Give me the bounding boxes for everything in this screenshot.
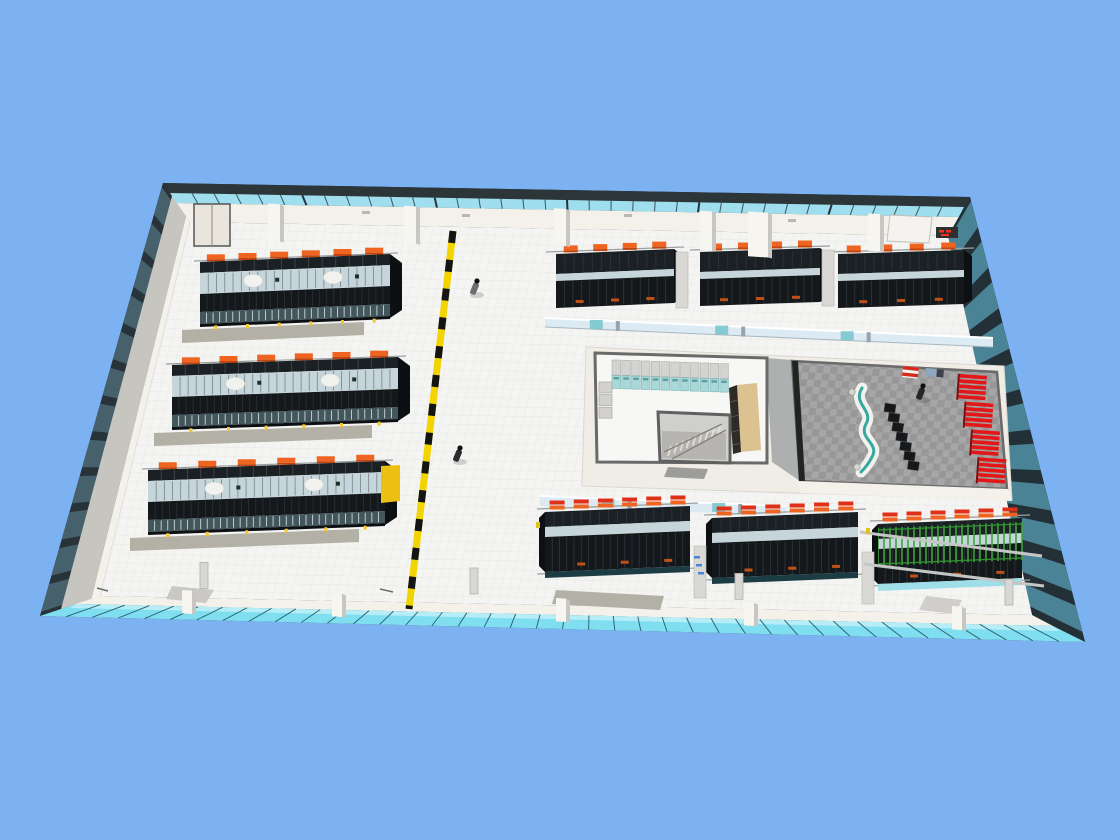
floor-dot <box>341 320 344 324</box>
cabinet-back <box>700 363 709 378</box>
floor-dot <box>324 527 327 531</box>
cable-tray-shadow <box>239 258 257 260</box>
cable-tray <box>941 243 955 248</box>
front-label <box>576 300 584 303</box>
partition-stub <box>200 563 208 589</box>
floor-dot <box>246 324 249 328</box>
cable-tray <box>646 497 661 501</box>
cable-tray <box>838 507 853 511</box>
cable-tray <box>302 250 320 255</box>
cabinet-back <box>681 362 690 377</box>
cabinet-label <box>643 378 649 380</box>
wall-fixture <box>462 214 470 217</box>
door-mat <box>664 467 708 479</box>
cabinet-label <box>712 380 718 382</box>
rack-row-left-2[interactable] <box>154 351 410 446</box>
cable-tray <box>979 509 994 513</box>
cabinet-label <box>672 379 678 381</box>
floor-dot <box>245 530 248 534</box>
cable-tray <box>270 252 288 257</box>
cable-tray-shadow <box>182 362 200 364</box>
row-end-cap <box>539 512 545 572</box>
cable-tray <box>220 356 238 361</box>
black-chair[interactable] <box>907 461 919 471</box>
rack-row-top-1[interactable] <box>546 242 684 308</box>
front-label <box>897 299 905 302</box>
pillar-shadow <box>566 209 570 247</box>
floor-dot <box>285 529 288 533</box>
cable-tray <box>838 502 853 506</box>
led-digit <box>941 234 949 236</box>
cable-tray <box>883 518 898 522</box>
gap-column <box>676 252 688 308</box>
pillar-shadow <box>712 211 716 251</box>
front-label <box>996 571 1004 574</box>
cable-tray <box>717 507 732 511</box>
cable-tray <box>1003 508 1018 512</box>
cabinet-back <box>661 362 670 377</box>
cabinet-back <box>641 361 650 376</box>
front-label <box>859 300 867 303</box>
cable-tray-shadow <box>365 253 383 255</box>
cable-tray <box>317 456 335 461</box>
cabinet-back <box>612 360 621 375</box>
yellow-marker <box>536 522 540 528</box>
cable-tray <box>765 505 780 509</box>
cable-tray-shadow <box>847 251 861 253</box>
ceiling-fan <box>244 274 263 287</box>
wall-fixture <box>362 211 370 214</box>
cable-tray <box>598 504 613 508</box>
sensor-box <box>352 377 356 381</box>
cable-tray-shadow <box>277 463 295 465</box>
ceiling-fan <box>304 478 323 491</box>
corridor-teal-accent <box>590 320 603 329</box>
corridor-teal-accent <box>841 331 854 340</box>
cable-tray <box>955 515 970 519</box>
cable-tray-shadow <box>564 250 578 252</box>
cable-tray <box>239 253 257 258</box>
cabinet-label <box>663 379 669 381</box>
black-chair[interactable] <box>892 422 904 432</box>
pillar <box>182 590 192 614</box>
pillar <box>952 606 962 630</box>
cable-tray <box>333 352 351 357</box>
cable-tray <box>741 506 756 510</box>
sensor-box <box>355 274 359 278</box>
cable-tray-shadow <box>207 259 225 261</box>
pillar-shadow <box>880 214 884 252</box>
front-label <box>788 567 796 570</box>
stairwell <box>658 412 730 463</box>
cable-tray <box>334 249 352 254</box>
pillar <box>700 211 712 251</box>
cable-tray <box>622 503 637 507</box>
cabinet-back <box>671 362 680 377</box>
pillar <box>268 204 280 242</box>
cable-tray-shadow <box>317 461 335 463</box>
front-label <box>621 561 629 564</box>
floor-dot <box>309 321 312 325</box>
rack-front-face <box>700 275 820 306</box>
cable-tray <box>670 496 685 500</box>
sensor-box <box>257 381 261 385</box>
pillar <box>868 213 880 251</box>
stool <box>849 389 855 395</box>
cable-tray <box>847 246 861 251</box>
ceiling-fan <box>205 482 224 495</box>
cable-tray <box>741 511 756 515</box>
row-end-cap <box>706 518 712 578</box>
front-label <box>577 563 585 566</box>
cable-tray-shadow <box>623 248 637 250</box>
cable-tray <box>550 506 565 510</box>
cable-tray <box>931 516 946 520</box>
pillar-shadow <box>416 207 420 245</box>
pillar-shadow <box>192 591 196 615</box>
cabinet-label <box>623 377 629 379</box>
pillar-shadow <box>342 594 346 618</box>
person-head <box>474 278 479 283</box>
row-end-cap <box>390 254 402 318</box>
cable-tray <box>598 499 613 503</box>
cabinet-label <box>682 379 688 381</box>
cable-tray <box>670 501 685 505</box>
corridor-column <box>741 327 745 337</box>
rack-row-top-3[interactable] <box>828 243 974 309</box>
cabinet-back <box>651 361 660 376</box>
cable-tray-shadow <box>302 255 320 257</box>
cable-tray-shadow <box>356 460 374 462</box>
rack-front-face <box>838 277 964 308</box>
cable-tray-shadow <box>238 464 256 466</box>
cable-tray-shadow <box>333 357 351 359</box>
front-label <box>792 296 800 299</box>
cable-tray <box>814 503 829 507</box>
cabinet-label <box>692 380 698 382</box>
cable-tray <box>370 351 388 356</box>
cable-tray <box>979 514 994 518</box>
partition-stub <box>1005 579 1013 605</box>
cable-tray <box>652 242 666 247</box>
wall-fixture <box>788 219 796 222</box>
pillar <box>332 593 342 617</box>
floor-dot <box>214 325 217 329</box>
front-label <box>646 297 654 300</box>
cable-tray <box>790 509 805 513</box>
cable-tray <box>356 455 374 460</box>
floor-dot <box>265 426 268 430</box>
cable-tray <box>257 355 275 360</box>
gray-storage-boxes <box>599 382 612 418</box>
led-digit <box>946 230 951 233</box>
pillar-shadow <box>280 204 284 242</box>
cabinet-label <box>614 377 620 379</box>
partition-stub <box>470 568 478 594</box>
black-chair[interactable] <box>900 441 912 451</box>
floor-dot <box>206 532 209 536</box>
black-chair[interactable] <box>888 413 900 423</box>
cable-tray <box>798 241 812 246</box>
cable-tray-shadow <box>652 247 666 249</box>
cable-tray <box>622 498 637 502</box>
ceiling-fan <box>226 377 245 390</box>
corridor-column <box>616 321 620 331</box>
cable-tray <box>365 248 383 253</box>
floor-dot <box>364 526 367 530</box>
black-chair[interactable] <box>896 432 908 442</box>
pillar-shadow <box>768 213 772 259</box>
blue-sign <box>925 368 944 378</box>
cable-tray <box>910 244 924 249</box>
cable-tray <box>931 511 946 515</box>
pillar <box>554 208 566 246</box>
cable-tray <box>765 510 780 514</box>
sensor-box <box>275 278 279 282</box>
black-chair[interactable] <box>884 403 896 413</box>
cable-tray <box>717 512 732 516</box>
cable-tray-shadow <box>910 249 924 251</box>
corridor-column <box>867 332 871 342</box>
row-end-cap <box>398 357 410 421</box>
gray-box <box>599 395 612 406</box>
cabinet-label <box>721 381 727 383</box>
floor-dot <box>278 323 281 327</box>
gap-column <box>862 552 874 604</box>
cable-tray <box>907 512 922 516</box>
pillar <box>744 602 754 626</box>
presentation-room[interactable] <box>792 361 1012 501</box>
pillar <box>748 212 768 258</box>
mullion <box>567 200 568 210</box>
cable-tray-shadow <box>270 257 288 259</box>
cable-tray-shadow <box>370 356 388 358</box>
central-utility-room[interactable] <box>595 353 767 479</box>
blue-marker <box>694 556 700 559</box>
cable-tray <box>955 510 970 514</box>
striped-sign <box>902 366 919 379</box>
floor-dot <box>189 428 192 432</box>
gap-column <box>822 250 834 306</box>
cable-tray <box>182 357 200 362</box>
cable-tray <box>550 501 565 505</box>
cable-tray <box>907 517 922 521</box>
cable-tray <box>814 508 829 512</box>
front-label <box>720 298 728 301</box>
front-label <box>756 297 764 300</box>
tan-shelf-top <box>737 383 761 452</box>
cabinet-label <box>702 380 708 382</box>
led-digit <box>939 230 944 233</box>
cable-tray <box>623 243 637 248</box>
cable-tray <box>238 459 256 464</box>
pillar-shadow <box>754 603 758 627</box>
pillar <box>404 206 416 244</box>
cabinet-back <box>710 363 719 378</box>
cable-tray-shadow <box>798 246 812 248</box>
wall-fixture <box>624 214 632 217</box>
cable-tray <box>790 504 805 508</box>
ceiling-fan <box>324 271 343 284</box>
ceiling-fan <box>321 374 340 387</box>
black-chair[interactable] <box>903 451 915 461</box>
floor-dot <box>373 319 376 323</box>
cable-tray <box>207 254 225 259</box>
yellow-marker <box>866 528 870 534</box>
partition-stub <box>735 573 743 599</box>
cabinet-back <box>622 360 631 375</box>
floor-dot <box>340 423 343 427</box>
sensor-box <box>336 482 340 486</box>
sensor-box <box>236 485 240 489</box>
cable-tray-shadow <box>220 361 238 363</box>
cabinet-back <box>632 361 641 376</box>
front-label <box>832 565 840 568</box>
front-label <box>935 298 943 301</box>
front-label <box>664 559 672 562</box>
cabinet-label <box>633 378 639 380</box>
cable-tray <box>198 461 216 466</box>
blue-marker <box>698 572 704 575</box>
floor-dot <box>166 533 169 537</box>
cable-tray-shadow <box>159 467 177 469</box>
front-label <box>611 299 619 302</box>
floor-dot <box>302 424 305 428</box>
pillar <box>556 598 566 622</box>
pillar-shadow <box>566 599 570 623</box>
cable-tray <box>574 500 589 504</box>
front-label <box>745 569 753 572</box>
floor-dot <box>378 422 381 426</box>
person-head <box>457 445 462 450</box>
cable-tray-shadow <box>941 248 955 250</box>
floor-dot <box>227 427 230 431</box>
stool <box>854 464 860 470</box>
cable-tray <box>1003 513 1018 517</box>
cable-tray <box>159 462 177 467</box>
front-label <box>910 575 918 578</box>
cable-tray <box>883 513 898 517</box>
cable-tray-shadow <box>295 358 313 360</box>
cable-tray <box>646 502 661 506</box>
cable-tray-shadow <box>334 254 352 256</box>
cabinet-label <box>653 378 659 380</box>
person-head <box>920 383 925 388</box>
cable-tray <box>593 244 607 249</box>
gray-box <box>599 382 612 393</box>
cable-tray-shadow <box>593 249 607 251</box>
cable-tray <box>295 353 313 358</box>
cable-tray-shadow <box>198 466 216 468</box>
cable-tray <box>277 458 295 463</box>
yellow-cabinet <box>381 465 400 503</box>
cable-tray <box>574 505 589 509</box>
mullion <box>698 202 699 212</box>
blue-marker <box>696 564 702 567</box>
pillar-shadow <box>962 607 966 631</box>
gray-box <box>599 407 612 418</box>
cabinet-back <box>690 363 699 378</box>
cable-tray-shadow <box>257 360 275 362</box>
cabinet-back <box>720 364 729 379</box>
row-end-cap <box>964 250 972 304</box>
corridor-teal-accent <box>715 326 728 335</box>
booth-body <box>887 215 932 243</box>
viewport-3d[interactable] <box>0 0 1120 840</box>
